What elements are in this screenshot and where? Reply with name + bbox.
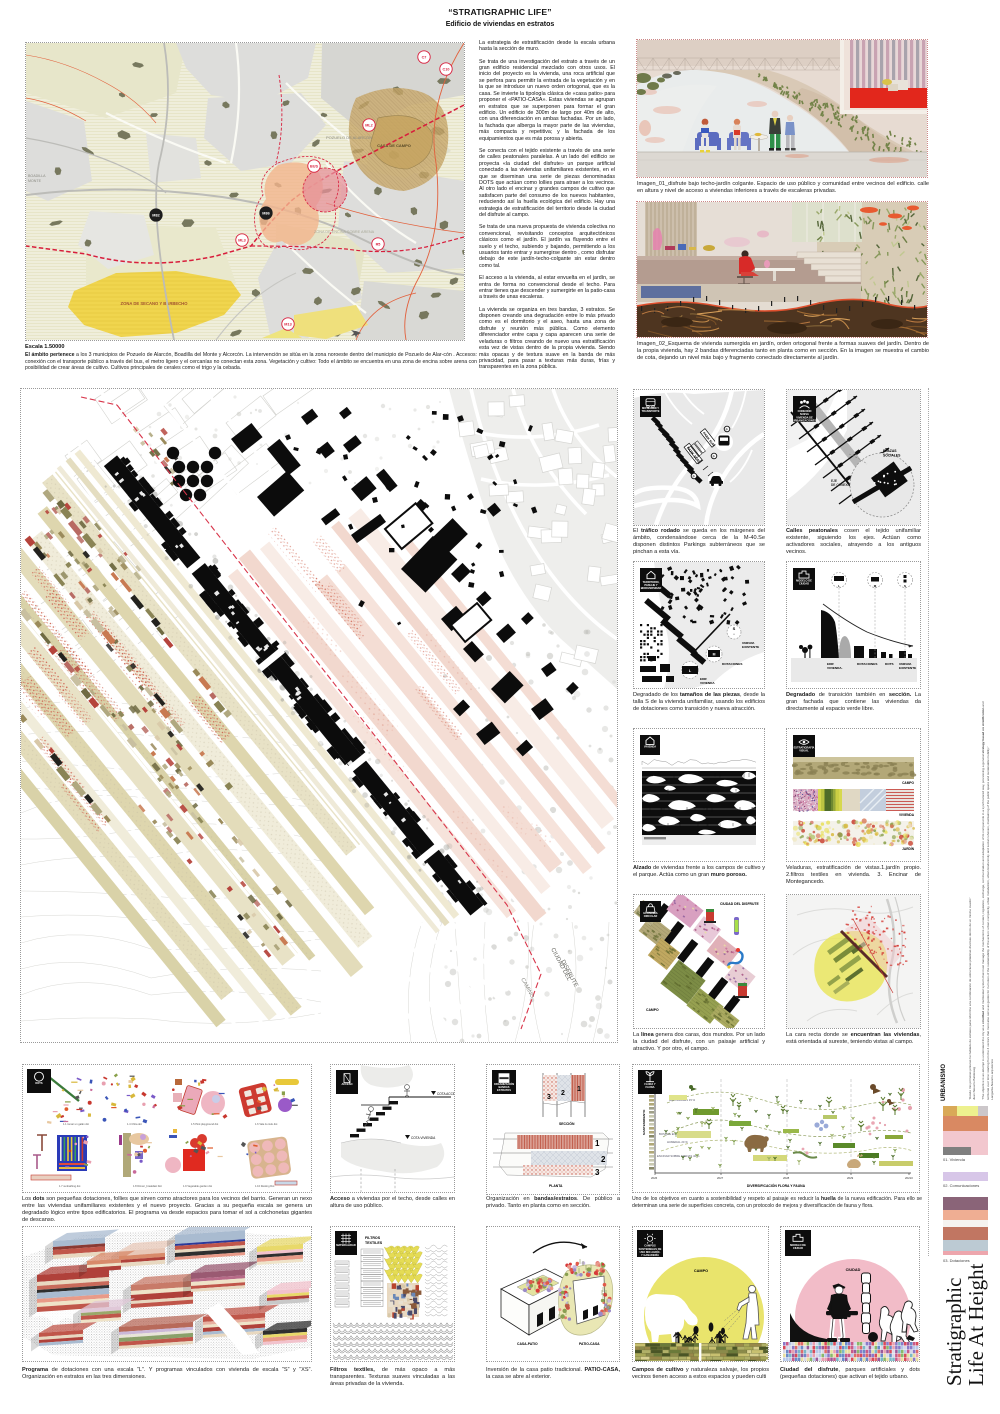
svg-text:CAMPO: CAMPO bbox=[694, 1269, 708, 1273]
svg-text:HUMEDAL 20 %: HUMEDAL 20 % bbox=[667, 1140, 688, 1144]
svg-text:TEXTILES: TEXTILES bbox=[365, 1241, 383, 1245]
svg-text:MANTENIMIENTO: MANTENIMIENTO bbox=[642, 1109, 646, 1135]
svg-text:3: 3 bbox=[547, 1094, 551, 1101]
svg-text:P: P bbox=[693, 474, 695, 478]
svg-text:2029: 2029 bbox=[847, 1176, 854, 1180]
svg-text:ACCESO: ACCESO bbox=[341, 1082, 352, 1086]
svg-text:M13: M13 bbox=[284, 323, 291, 327]
svg-text:S: S bbox=[733, 626, 736, 631]
svg-text:1.9 Vegetable garden dot: 1.9 Vegetable garden dot bbox=[183, 1184, 212, 1188]
svg-text:DIVERSIFICACIÓN FLORA Y FAUNA: DIVERSIFICACIÓN FLORA Y FAUNA bbox=[747, 1183, 806, 1188]
svg-text:VISUAL: VISUAL bbox=[799, 749, 809, 753]
svg-text:ZONA DE SECANO Y BARBECHO: ZONA DE SECANO Y BARBECHO bbox=[121, 301, 189, 306]
svg-text:PATIO-CASA: PATIO-CASA bbox=[579, 1342, 600, 1346]
svg-text:CIUDAD DEL DISFRUTE: CIUDAD DEL DISFRUTE bbox=[720, 902, 759, 906]
svg-text:1.10 Resting Dot: 1.10 Resting Dot bbox=[255, 1184, 275, 1188]
svg-text:CASA-PATIO: CASA-PATIO bbox=[517, 1342, 538, 1346]
svg-text:1: 1 bbox=[577, 1086, 581, 1093]
svg-text:⌂: ⌂ bbox=[733, 632, 735, 636]
svg-text:DOTACIONES: DOTACIONES bbox=[857, 662, 877, 666]
svg-text:ML3: ML3 bbox=[238, 239, 246, 243]
svg-text:ESCOLAR: ESCOLAR bbox=[644, 1256, 657, 1260]
svg-text:ESTRATOS: ESTRATOS bbox=[497, 1088, 511, 1092]
svg-text:SOCIALES: SOCIALES bbox=[883, 454, 901, 458]
svg-text:CIUDAD: CIUDAD bbox=[799, 582, 809, 586]
svg-text:1.7 sunbathing dot: 1.7 sunbathing dot bbox=[59, 1184, 81, 1188]
svg-text:ENCINAR SOBRE ARENAS 40 %: ENCINAR SOBRE ARENAS 40 % bbox=[657, 1154, 700, 1158]
svg-text:PLANTA: PLANTA bbox=[549, 1184, 563, 1188]
svg-text:2: 2 bbox=[601, 1155, 606, 1164]
svg-text:COTA VIVIENDA: COTA VIVIENDA bbox=[411, 1136, 436, 1140]
svg-text:1.1 tomar un galán dot: 1.1 tomar un galán dot bbox=[63, 1122, 89, 1126]
svg-text:DOTACIONES: DOTACIONES bbox=[722, 662, 742, 666]
svg-text:MATERIALIDAD: MATERIALIDAD bbox=[336, 1243, 356, 1247]
svg-text:FAUNA: FAUNA bbox=[646, 1085, 655, 1089]
svg-text:FILTROS: FILTROS bbox=[365, 1236, 381, 1240]
svg-text:1.5 Pink playground dot: 1.5 Pink playground dot bbox=[191, 1122, 219, 1126]
svg-text:CAMPO: CAMPO bbox=[646, 1008, 659, 1012]
svg-text:MONTE: MONTE bbox=[28, 179, 42, 183]
svg-text:1.8 Dinner_breakfast Dot: 1.8 Dinner_breakfast Dot bbox=[133, 1184, 162, 1188]
svg-text:BOADILLA: BOADILLA bbox=[28, 174, 46, 178]
svg-text:COTA ACCESO: COTA ACCESO bbox=[437, 1092, 454, 1096]
svg-text:TRANSPORTE: TRANSPORTE bbox=[642, 409, 660, 413]
svg-text:C7: C7 bbox=[422, 56, 427, 60]
svg-text:M86: M86 bbox=[262, 212, 269, 216]
svg-text:ZONA DE ENCINA SOBRE ARENA: ZONA DE ENCINA SOBRE ARENA bbox=[314, 230, 375, 234]
svg-text:VIVIENDA: VIVIENDA bbox=[644, 744, 656, 748]
svg-text:DOTS: DOTS bbox=[35, 1081, 42, 1085]
svg-text:2027: 2027 bbox=[717, 1176, 724, 1180]
svg-text:JARDÍN: JARDÍN bbox=[902, 846, 915, 851]
svg-text:P: P bbox=[726, 427, 728, 431]
svg-text:VIVIENDA: VIVIENDA bbox=[700, 681, 715, 685]
svg-text:2026: 2026 bbox=[651, 1176, 658, 1180]
svg-text:M82: M82 bbox=[152, 214, 159, 218]
svg-text:ML2: ML2 bbox=[365, 124, 373, 128]
svg-text:URBANIZACIONES: URBANIZACIONES bbox=[793, 418, 817, 422]
svg-text:L: L bbox=[838, 584, 840, 588]
svg-text:P: P bbox=[713, 454, 715, 458]
svg-text:CIUDAD: CIUDAD bbox=[846, 1268, 861, 1272]
svg-text:EXISTENTE: EXISTENTE bbox=[899, 666, 916, 670]
svg-text:VIVIENDA.: VIVIENDA. bbox=[827, 666, 843, 670]
svg-text:20210: 20210 bbox=[905, 1176, 913, 1180]
svg-text:BIODIVERSIDAD: BIODIVERSIDAD bbox=[641, 586, 662, 590]
svg-text:2: 2 bbox=[561, 1090, 565, 1097]
svg-text:PLAZAS: PLAZAS bbox=[883, 449, 897, 453]
svg-text:CAMPO: CAMPO bbox=[902, 781, 914, 785]
svg-text:BUS: BUS bbox=[310, 165, 318, 169]
svg-text:3: 3 bbox=[595, 1168, 600, 1177]
svg-text:1.6 Vale & cook dot: 1.6 Vale & cook dot bbox=[255, 1122, 278, 1126]
svg-text:DOTS: DOTS bbox=[885, 662, 894, 666]
svg-text:S: S bbox=[904, 584, 906, 588]
svg-text:POZUELO DE ALARCÓN: POZUELO DE ALARCÓN bbox=[326, 135, 372, 140]
svg-text:SECCIÓN: SECCIÓN bbox=[559, 1121, 575, 1126]
svg-text:CIUDAD: CIUDAD bbox=[793, 1246, 803, 1250]
svg-text:VIVIENDA: VIVIENDA bbox=[899, 813, 915, 817]
svg-text:EXISTENTE: EXISTENTE bbox=[742, 645, 759, 649]
svg-text:1: 1 bbox=[595, 1139, 600, 1148]
svg-text:1.4 Chita dot: 1.4 Chita dot bbox=[127, 1122, 142, 1126]
svg-text:C10: C10 bbox=[443, 68, 450, 72]
svg-text:CIRCULAR: CIRCULAR bbox=[644, 914, 658, 918]
svg-text:R5: R5 bbox=[376, 243, 381, 247]
svg-text:M: M bbox=[713, 653, 716, 657]
svg-text:2028: 2028 bbox=[783, 1176, 790, 1180]
